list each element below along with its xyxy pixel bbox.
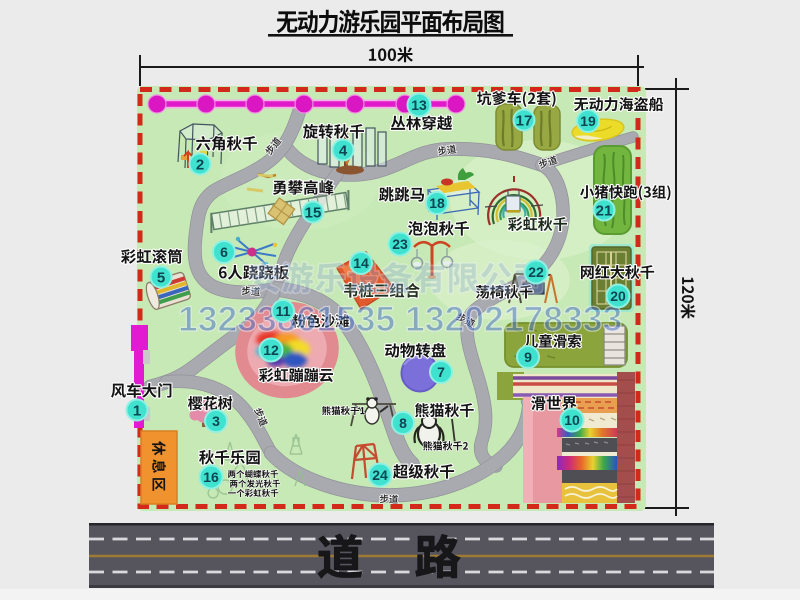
svg-text:12: 12 — [263, 342, 279, 358]
svg-text:2: 2 — [196, 156, 204, 173]
svg-text:5: 5 — [157, 269, 165, 286]
svg-text:11: 11 — [276, 303, 291, 319]
svg-text:3: 3 — [212, 413, 220, 429]
svg-text:9: 9 — [524, 349, 532, 365]
svg-text:15: 15 — [305, 204, 322, 221]
svg-text:18: 18 — [429, 195, 445, 211]
svg-text:10: 10 — [564, 412, 580, 428]
svg-text:17: 17 — [516, 112, 533, 129]
svg-text:13233861535 13202178333: 13233861535 13202178333 — [178, 299, 622, 339]
svg-text:24: 24 — [372, 467, 388, 483]
svg-text:14: 14 — [353, 255, 369, 271]
svg-text:19: 19 — [580, 113, 596, 129]
svg-text:4: 4 — [339, 142, 348, 159]
svg-text:23: 23 — [392, 236, 408, 252]
svg-text:7: 7 — [437, 364, 445, 380]
svg-text:1: 1 — [133, 402, 141, 419]
svg-text:16: 16 — [203, 469, 219, 485]
svg-text:22: 22 — [528, 264, 544, 280]
svg-text:6: 6 — [220, 244, 228, 260]
svg-text:13: 13 — [411, 97, 427, 113]
svg-text:20: 20 — [610, 288, 626, 304]
svg-text:8: 8 — [399, 415, 407, 431]
svg-text:21: 21 — [596, 202, 613, 219]
